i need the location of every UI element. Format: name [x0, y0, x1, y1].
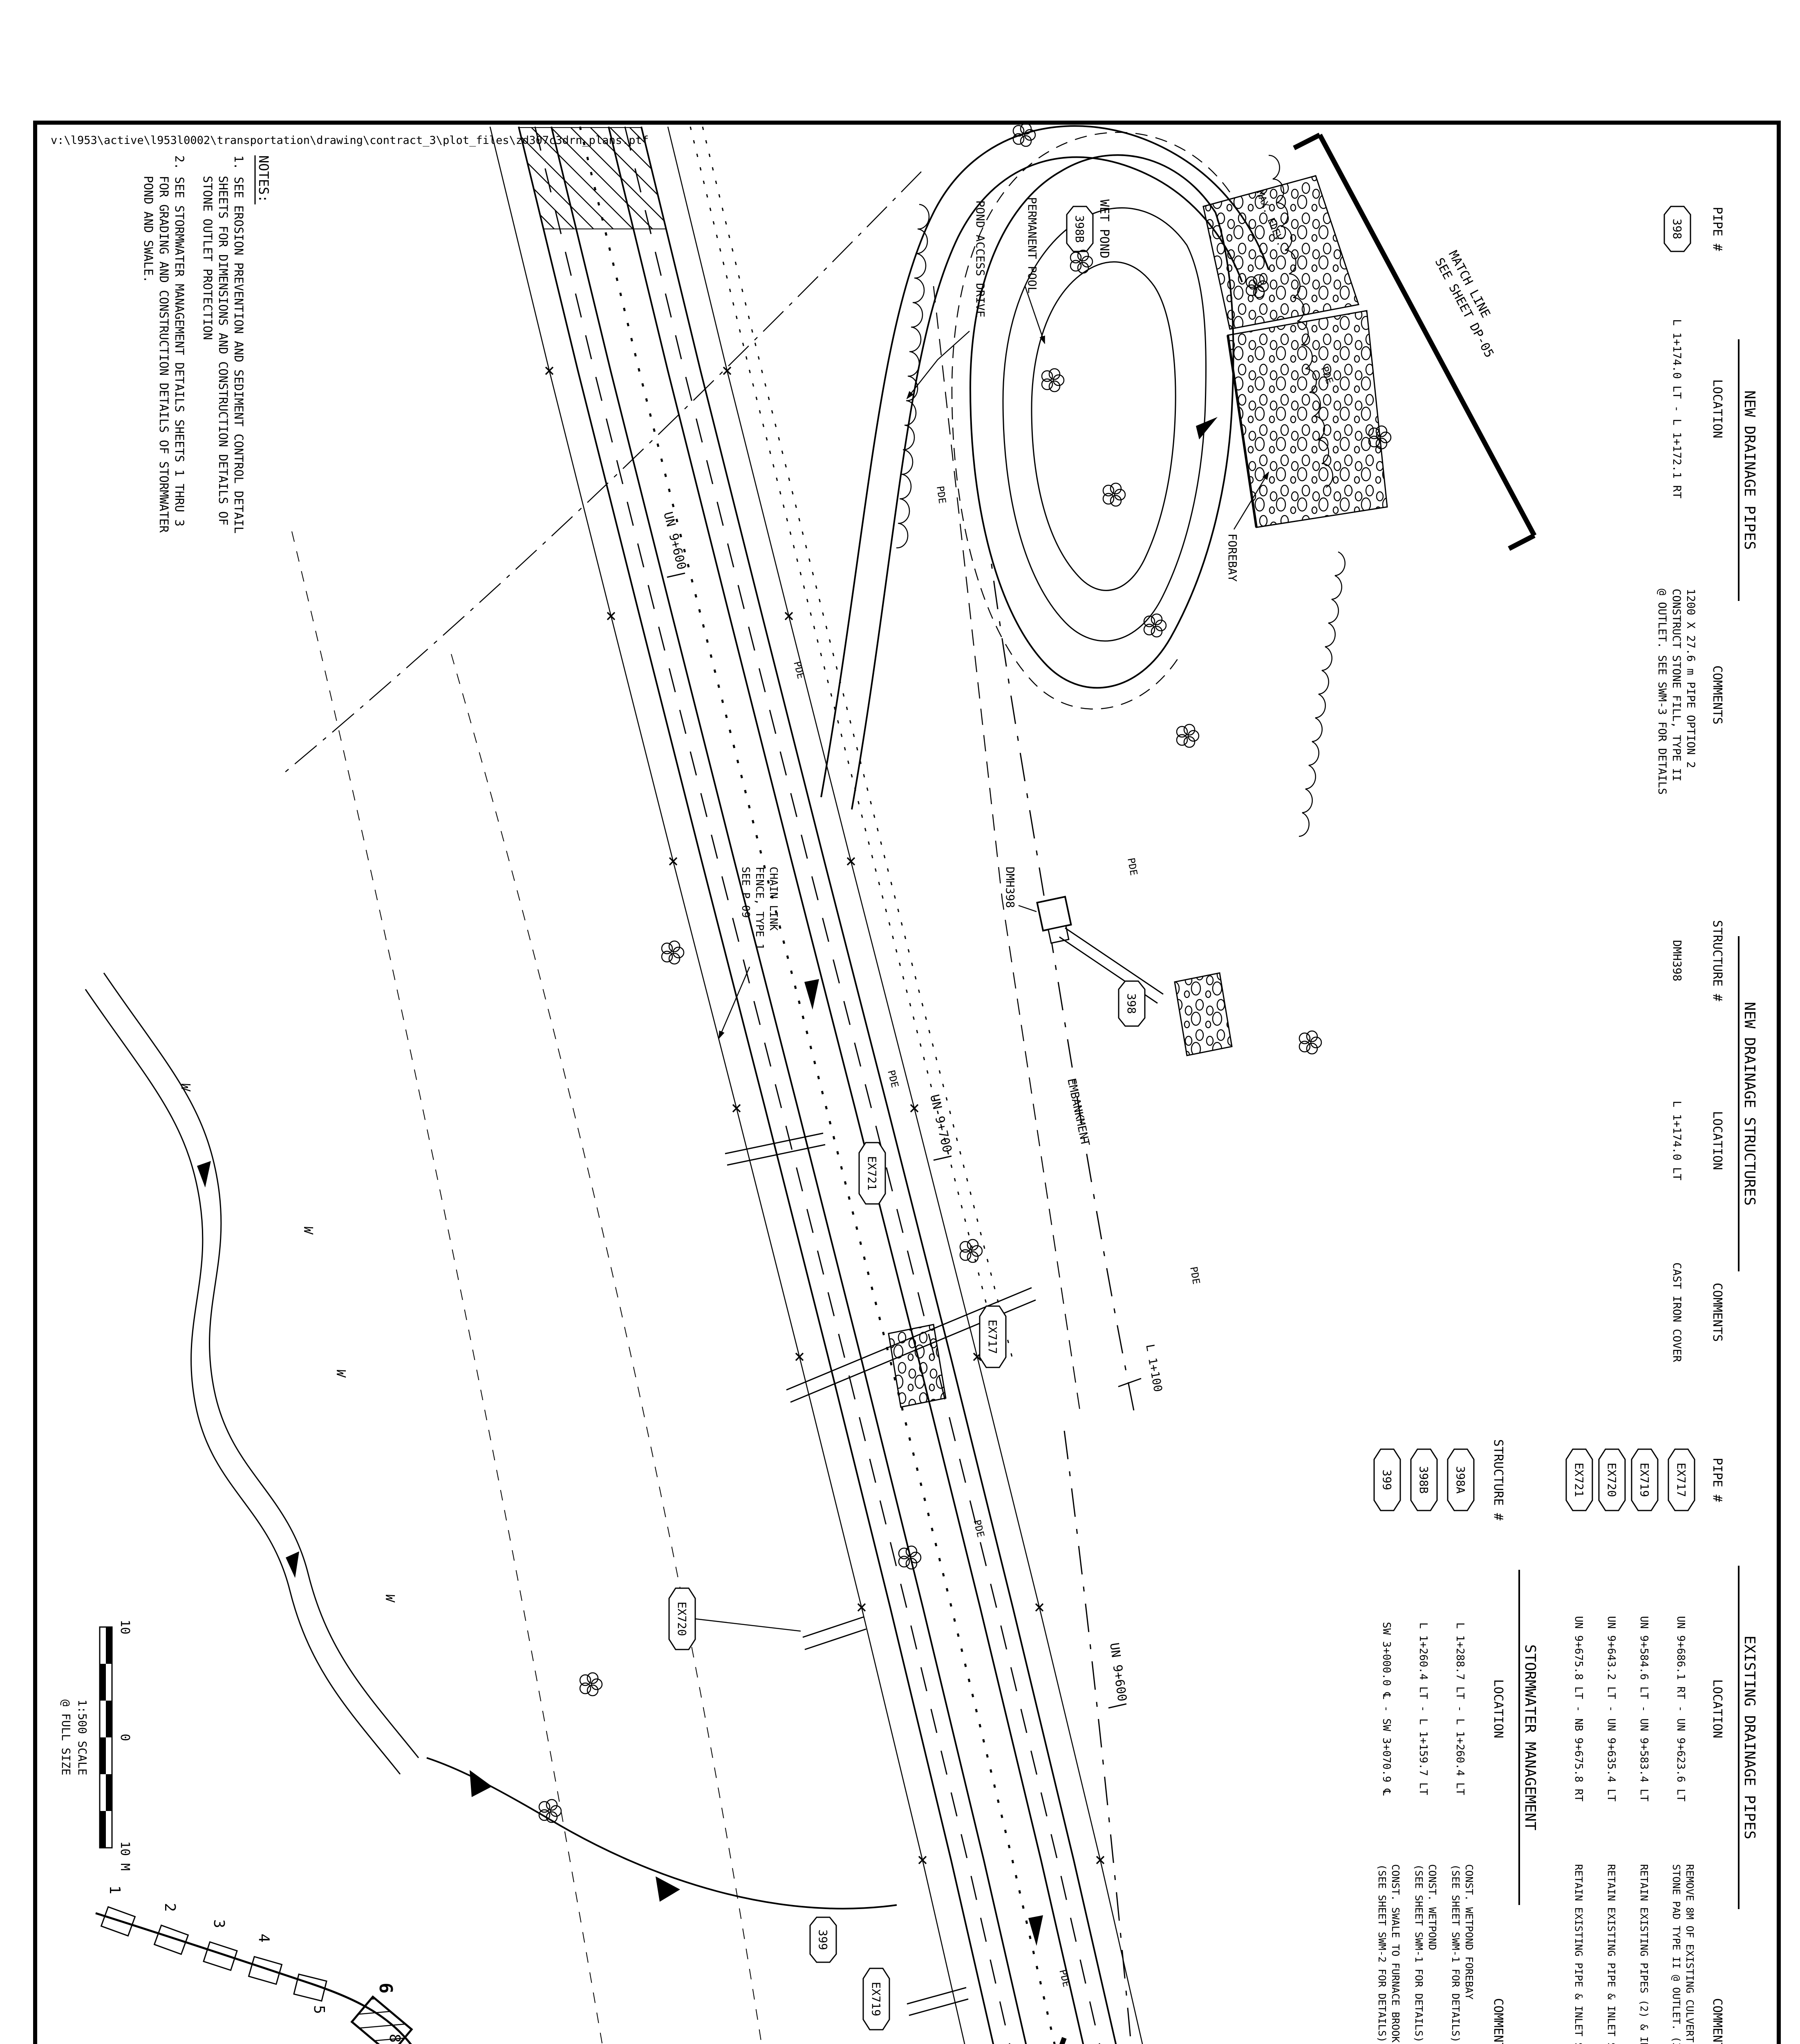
- svg-text:CONST. SWALE TO FURNACE BROOK: CONST. SWALE TO FURNACE BROOK: [1390, 1864, 1401, 2043]
- svg-text:(SEE SHEET SWM-1 FOR DETAILS): (SEE SHEET SWM-1 FOR DETAILS): [1450, 1864, 1462, 2043]
- svg-text:1:500 SCALE: 1:500 SCALE: [76, 1699, 89, 1775]
- table-title: STORMWATER MANAGEMENT: [1522, 1644, 1538, 1830]
- dmh398-label: DMH398: [1003, 867, 1037, 912]
- svg-text:(SEE SHEET SWM-1 FOR DETAILS): (SEE SHEET SWM-1 FOR DETAILS): [1413, 1864, 1425, 2043]
- svg-text:398B: 398B: [1417, 1466, 1431, 1493]
- svg-text:STONE PAD TYPE II @ OUTLET. (3: STONE PAD TYPE II @ OUTLET. (3.6 M X 7.2…: [1670, 1864, 1682, 2044]
- svg-text:L 1+174.0 LT - L 1+172.1 RT: L 1+174.0 LT - L 1+172.1 RT: [1670, 319, 1683, 499]
- svg-text:4: 4: [255, 1934, 272, 1943]
- svg-text:LOCATION: LOCATION: [1491, 1679, 1505, 1739]
- svg-text:PDE: PDE: [1057, 1968, 1072, 1988]
- table-new-drainage-pipes: NEW DRAINAGE PIPES PIPE # LOCATION COMME…: [1656, 206, 1758, 795]
- drainage-plan-sheet: v:\l953\active\l953l0002\transportation\…: [0, 0, 1800, 2044]
- svg-text:EX717: EX717: [1675, 1463, 1688, 1497]
- svg-text:CAST IRON COVER: CAST IRON COVER: [1670, 1262, 1683, 1363]
- svg-text:8: 8: [386, 2034, 403, 2043]
- ex720-callout: EX720: [669, 1588, 801, 1650]
- svg-text:POND ACCESS DRIVE: POND ACCESS DRIVE: [974, 200, 987, 318]
- match-line-swm2: MATCH LINE STA. UN 9+660 SEE SHEET SWM-2: [842, 2038, 1070, 2044]
- svg-text:UN 9+600: UN 9+600: [660, 510, 689, 571]
- key-map: 1 2 3 4 5 6 7 8 9 10 KEY MAP N: [96, 1885, 477, 2044]
- embankment-label: EMBANKMENT: [1065, 1077, 1092, 1148]
- svg-text:CONST. WETPOND: CONST. WETPOND: [1426, 1864, 1438, 1950]
- svg-text:PDE: PDE: [1188, 1266, 1202, 1285]
- svg-text:EX719: EX719: [1638, 1463, 1651, 1497]
- svg-text:(SEE SHEET SWM-2 FOR DETAILS): (SEE SHEET SWM-2 FOR DETAILS): [1376, 1864, 1388, 2043]
- svg-text:FOR GRADING AND CONSTRUCTION D: FOR GRADING AND CONSTRUCTION DETAILS OF …: [157, 176, 171, 533]
- svg-text:STRUCTURE #: STRUCTURE #: [1710, 920, 1724, 1002]
- svg-text:UN 9+584.6 LT - UN 9+583.4 LT: UN 9+584.6 LT - UN 9+583.4 LT: [1638, 1616, 1650, 1802]
- svg-text:1. SEE EROSION PREVENTION AND: 1. SEE EROSION PREVENTION AND SEDIMENT C…: [232, 155, 246, 533]
- table-stormwater-management: STORMWATER MANAGEMENT STRUCTURE # LOCATI…: [1374, 1439, 1538, 2044]
- svg-text:DMH398: DMH398: [1670, 940, 1684, 981]
- svg-text:COMMENTS: COMMENTS: [1491, 1998, 1505, 2044]
- svg-text:2: 2: [161, 1903, 178, 1912]
- svg-text:COMMENTS: COMMENTS: [1710, 666, 1724, 725]
- svg-text:W: W: [178, 1083, 193, 1092]
- svg-text:3: 3: [210, 1919, 227, 1928]
- table-title: NEW DRAINAGE PIPES: [1741, 390, 1758, 550]
- landscape-sheet: v:\l953\active\l953l0002\transportation\…: [0, 0, 1800, 2044]
- notes-block: NOTES: 1. SEE EROSION PREVENTION AND SED…: [141, 155, 271, 533]
- ex717-callout: EX717: [980, 1306, 1006, 1367]
- svg-text:STONE OUTLET PROTECTION: STONE OUTLET PROTECTION: [201, 176, 215, 340]
- svg-text:L 1+288.7 LT - L 1+260.4 LT: L 1+288.7 LT - L 1+260.4 LT: [1454, 1623, 1466, 1795]
- table-title: EXISTING DRAINAGE PIPES: [1741, 1636, 1758, 1840]
- svg-text:LOCATION: LOCATION: [1710, 1679, 1724, 1739]
- wetland-marks: W W W W: [178, 1083, 397, 1603]
- svg-text:PIPE #: PIPE #: [1710, 1458, 1724, 1502]
- svg-text:EX720: EX720: [1605, 1463, 1619, 1497]
- scale-bar: 10 0 10 M 1:500 SCALE @ FULL SIZE: [59, 1620, 132, 1871]
- svg-text:1: 1: [106, 1885, 123, 1894]
- svg-text:1200 X 27.6 m PIPE OPTION 2: 1200 X 27.6 m PIPE OPTION 2: [1684, 589, 1697, 768]
- svg-text:SHEETS FOR DIMENSIONS AND CONS: SHEETS FOR DIMENSIONS AND CONSTRUCTION D…: [216, 176, 230, 526]
- svg-text:PDE: PDE: [934, 485, 948, 504]
- svg-text:FOREBAY: FOREBAY: [1226, 533, 1239, 582]
- svg-text:RETAIN EXISTING PIPE & INLET S: RETAIN EXISTING PIPE & INLET STRUCTURE: [1605, 1864, 1617, 2044]
- svg-text:EMBANKMENT: EMBANKMENT: [1065, 1077, 1092, 1148]
- svg-text:399: 399: [1380, 1470, 1394, 1490]
- svg-text:L 1+100: L 1+100: [1143, 1343, 1165, 1393]
- table-existing-drainage-pipes: EXISTING DRAINAGE PIPES PIPE # LOCATION …: [1566, 1449, 1758, 2044]
- svg-text:L 1+260.4 LT - L 1+159.7 LT: L 1+260.4 LT - L 1+159.7 LT: [1417, 1623, 1429, 1795]
- svg-text:UN 9+600: UN 9+600: [1107, 1642, 1129, 1702]
- furnace-brook: [85, 973, 419, 1774]
- svg-text:EX721: EX721: [1572, 1463, 1586, 1497]
- svg-text:W: W: [301, 1226, 315, 1235]
- svg-text:PERMANENT POOL: PERMANENT POOL: [1025, 197, 1039, 294]
- pond-callout-398B: 398B: [1073, 215, 1086, 242]
- wet-pond-labels: WET POND 398B PERMANENT POOL: [1025, 197, 1111, 343]
- svg-text:UN 9+700: UN 9+700: [927, 1093, 954, 1154]
- svg-text:UN 9+675.8 LT - NB 9+675.8 RT: UN 9+675.8 LT - NB 9+675.8 RT: [1572, 1616, 1585, 1802]
- swale-399: 399: [427, 1758, 897, 1962]
- svg-text:COMMENTS: COMMENTS: [1710, 1283, 1724, 1342]
- svg-text:10: 10: [118, 1620, 132, 1634]
- svg-text:SEE P-09: SEE P-09: [739, 867, 752, 918]
- svg-text:W: W: [383, 1594, 397, 1603]
- table-new-drainage-structures: NEW DRAINAGE STRUCTURES STRUCTURE # LOCA…: [1670, 920, 1758, 1363]
- svg-text:PDE: PDE: [791, 660, 807, 680]
- svg-text:0: 0: [118, 1734, 132, 1741]
- svg-text:PDE: PDE: [885, 1069, 901, 1089]
- svg-text:EX721: EX721: [865, 1156, 879, 1190]
- notes-title: NOTES:: [256, 155, 271, 203]
- svg-text:W: W: [334, 1369, 348, 1378]
- ex721-callout: EX721: [859, 1143, 885, 1204]
- svg-text:SW 3+000.0 ℄ - SW 3+070.9 ℄: SW 3+000.0 ℄ - SW 3+070.9 ℄: [1380, 1622, 1393, 1796]
- l-line-alignment: [990, 552, 1149, 2044]
- svg-text:EX717: EX717: [986, 1320, 999, 1354]
- station-labels: UN 9+600 UN 9+700 UN 9+600: [660, 510, 1129, 1708]
- pipe-398-callout: 398: [1119, 981, 1145, 1026]
- svg-text:REMOVE 8M OF EXISTING CULVERT: REMOVE 8M OF EXISTING CULVERT CONSTRUCT: [1684, 1864, 1696, 2044]
- svg-text:FENCE, TYPE 1: FENCE, TYPE 1: [753, 867, 766, 950]
- svg-text:398: 398: [1125, 993, 1138, 1014]
- svg-text:COMMENTS: COMMENTS: [1710, 1998, 1724, 2044]
- svg-text:UN 9+686.1 RT - UN 9+623.6 LT: UN 9+686.1 RT - UN 9+623.6 LT: [1675, 1616, 1687, 1802]
- svg-text:CONSTRUCT STONE FILL, TYPE II: CONSTRUCT STONE FILL, TYPE II: [1670, 589, 1683, 781]
- svg-text:LOCATION: LOCATION: [1710, 1111, 1724, 1170]
- table-title: NEW DRAINAGE STRUCTURES: [1741, 1002, 1758, 1206]
- svg-text:EX719: EX719: [869, 1982, 883, 2016]
- svg-text:6: 6: [375, 1983, 396, 1994]
- svg-text:PIPE #: PIPE #: [1710, 207, 1724, 251]
- swale-callout-399: 399: [816, 1930, 830, 1950]
- svg-text:@ OUTLET. SEE SWM-3 FOR DETAIL: @ OUTLET. SEE SWM-3 FOR DETAILS: [1656, 589, 1668, 795]
- l-line-station: L 1+100: [1143, 1343, 1165, 1393]
- svg-text:10 M: 10 M: [118, 1841, 132, 1871]
- svg-text:RETAIN EXISTING PIPES (2) & IN: RETAIN EXISTING PIPES (2) & INLET STRUCT…: [1638, 1864, 1650, 2044]
- svg-text:5: 5: [311, 2005, 327, 2014]
- svg-text:WET POND: WET POND: [1097, 199, 1111, 259]
- sheet-border: [35, 123, 1779, 2044]
- pond-access-drive: [821, 126, 1269, 809]
- svg-text:L 1+174.0 LT: L 1+174.0 LT: [1670, 1100, 1683, 1180]
- svg-text:CONST. WETPOND FOREBAY: CONST. WETPOND FOREBAY: [1463, 1864, 1475, 1999]
- svg-text:@ FULL SIZE: @ FULL SIZE: [59, 1699, 73, 1775]
- svg-text:PDE: PDE: [1125, 857, 1140, 876]
- svg-text:2. SEE STORMWATER MANAGEMENT D: 2. SEE STORMWATER MANAGEMENT DETAILS SHE…: [172, 155, 186, 527]
- svg-text:UN 9+643.2 LT - UN 9+635.4 LT: UN 9+643.2 LT - UN 9+635.4 LT: [1605, 1616, 1617, 1802]
- svg-text:398A: 398A: [1454, 1466, 1467, 1494]
- svg-text:EX720: EX720: [675, 1602, 689, 1636]
- chain-link-fence-label: CHAIN LINK FENCE, TYPE 1 SEE P-09: [719, 867, 779, 1038]
- svg-text:LOCATION: LOCATION: [1710, 379, 1724, 439]
- ex719-callout: EX719: [863, 1968, 889, 2030]
- svg-text:PDE: PDE: [971, 1519, 987, 1539]
- svg-text:STRUCTURE #: STRUCTURE #: [1491, 1439, 1505, 1521]
- svg-text:DMH398: DMH398: [1003, 867, 1017, 908]
- svg-text:POND AND SWALE.: POND AND SWALE.: [141, 176, 155, 283]
- svg-text:398: 398: [1670, 219, 1684, 240]
- svg-text:RETAIN EXISTING PIPE & INLET S: RETAIN EXISTING PIPE & INLET STRUCTURE: [1573, 1864, 1585, 2044]
- plan-canvas: v:\l953\active\l953l0002\transportation\…: [0, 0, 1800, 2044]
- svg-text:CHAIN LINK: CHAIN LINK: [767, 867, 779, 931]
